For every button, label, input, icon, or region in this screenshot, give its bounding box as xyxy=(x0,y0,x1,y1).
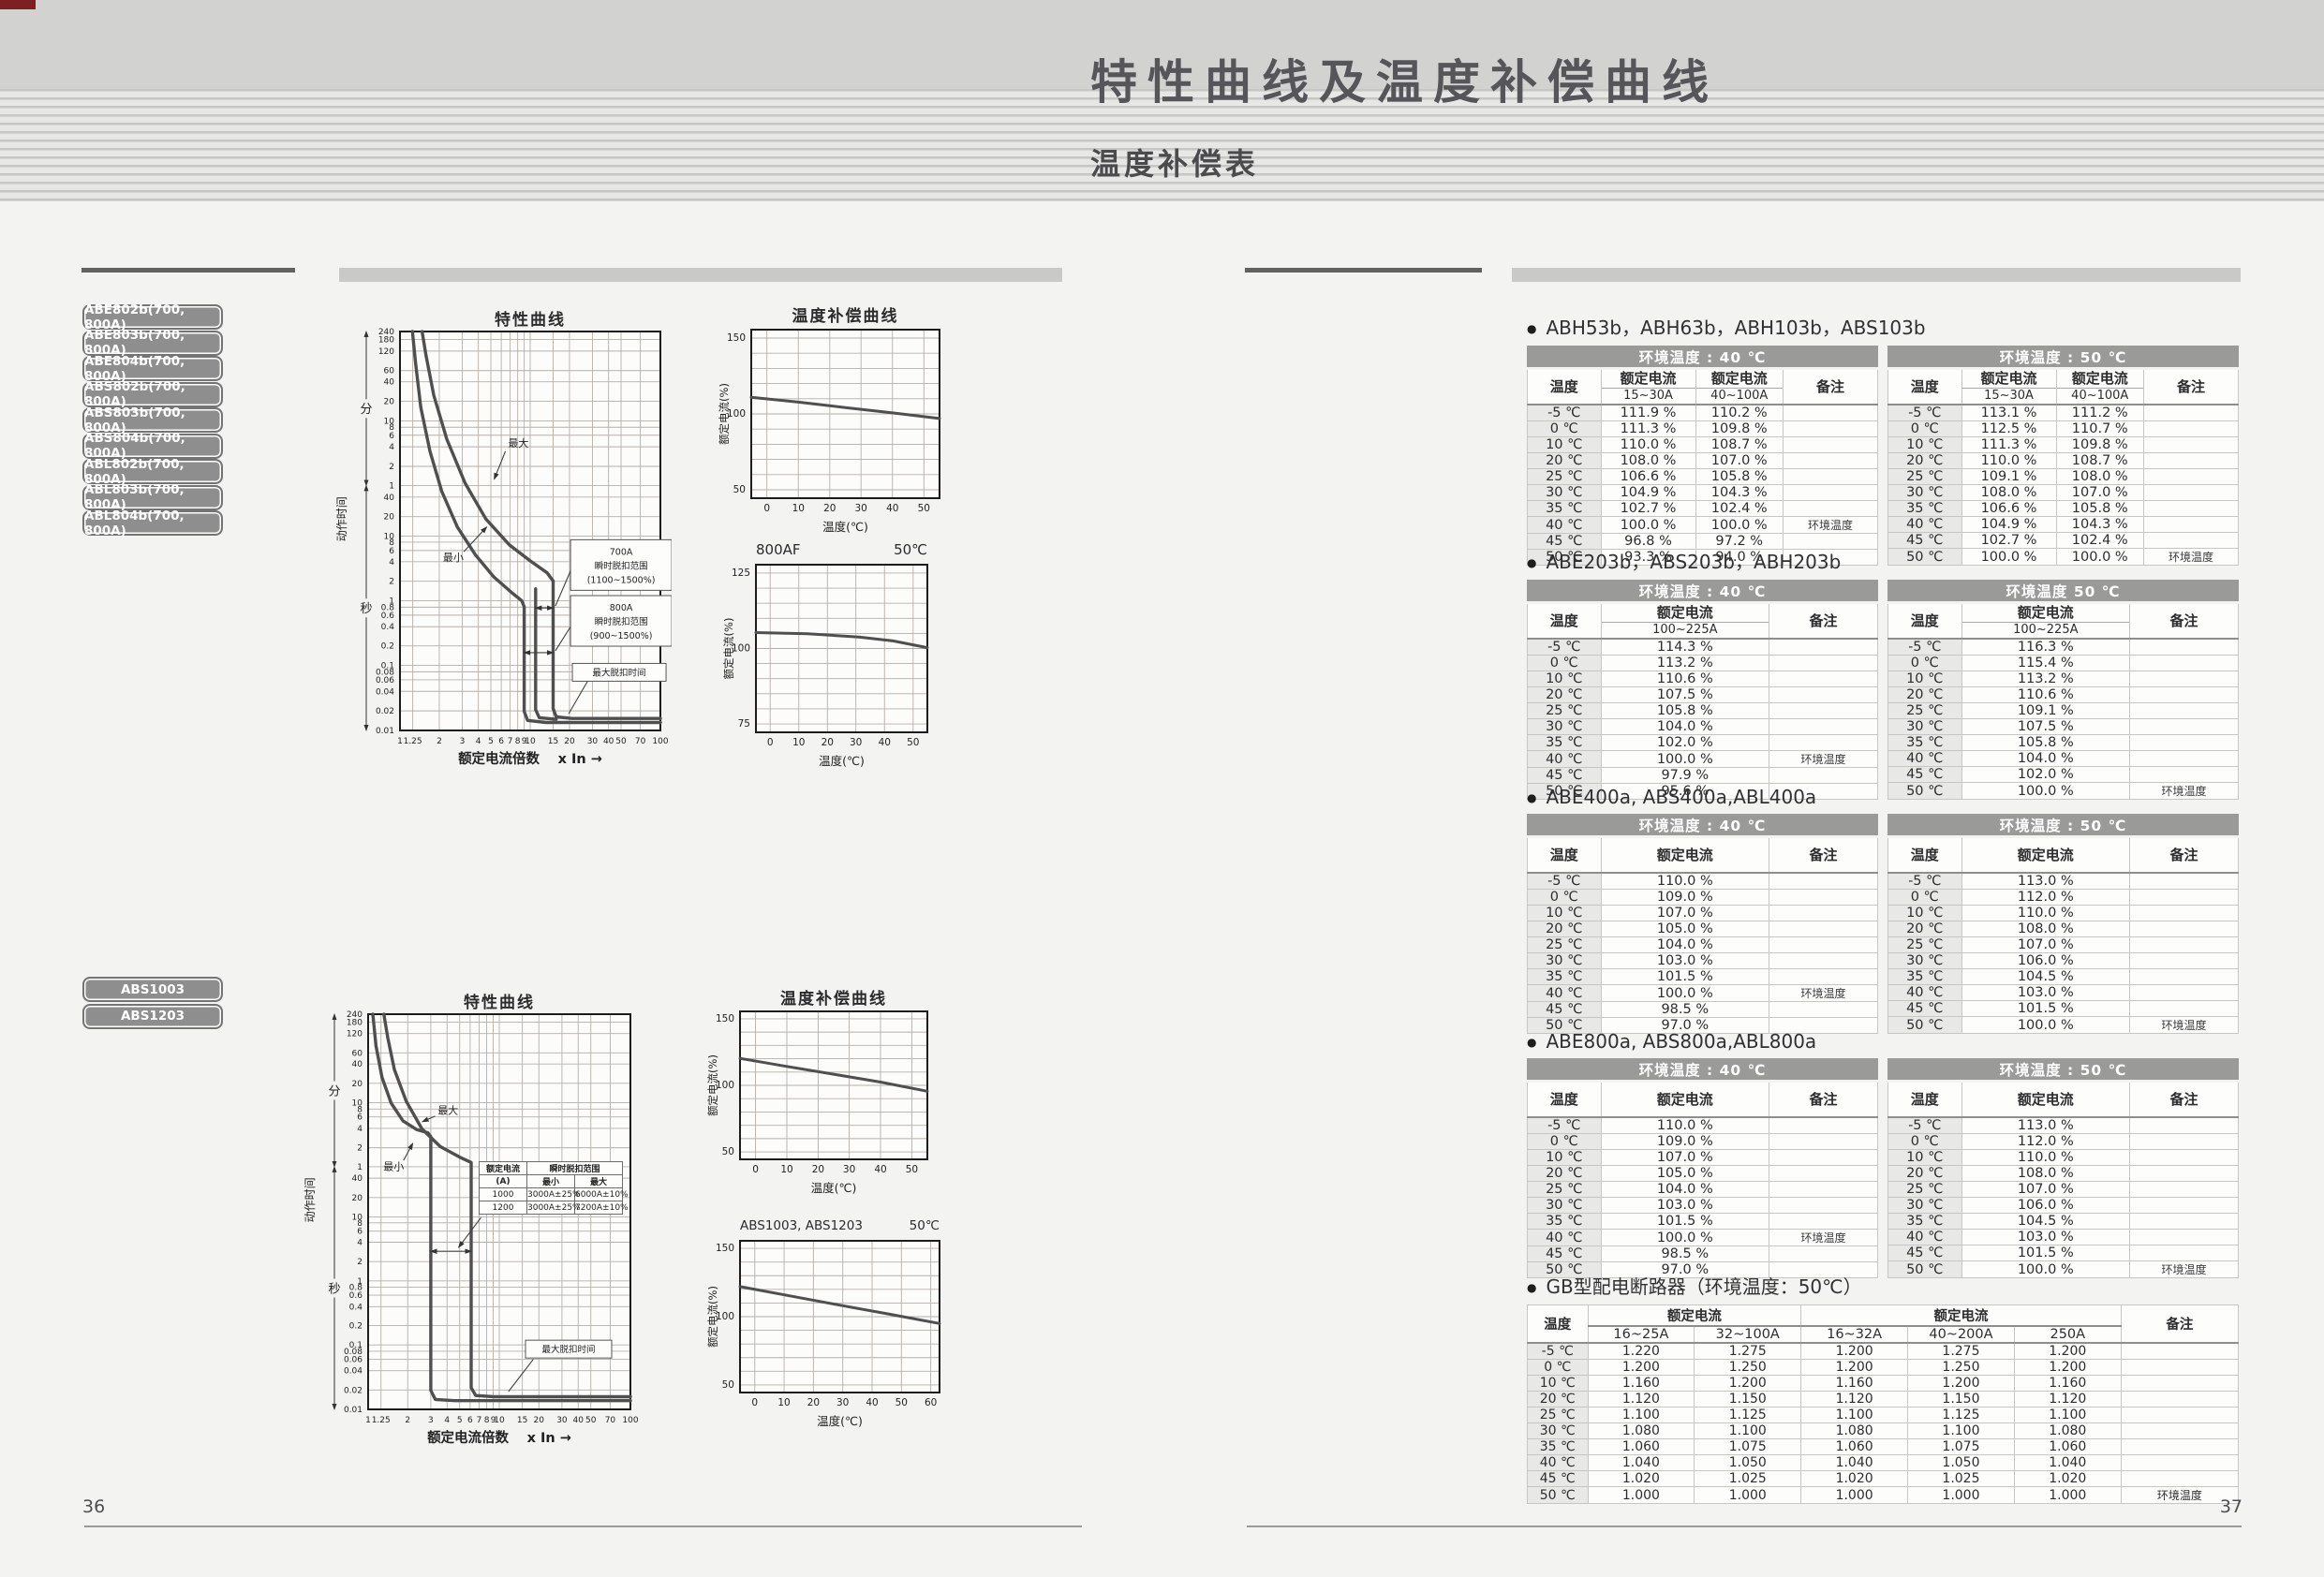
table-cell: 1.060 xyxy=(2014,1439,2121,1455)
table-row: 20 ℃108.0 % xyxy=(1888,1166,2239,1182)
svg-text:0.01: 0.01 xyxy=(376,727,394,736)
svg-text:额定电流(%): 额定电流(%) xyxy=(722,618,735,680)
table-cell: 1.020 xyxy=(2014,1471,2121,1487)
svg-text:1: 1 xyxy=(357,1163,363,1172)
table-cell xyxy=(1769,1134,1878,1150)
svg-text:20: 20 xyxy=(812,1164,824,1175)
table-row: 10 ℃110.0 %108.7 % xyxy=(1528,437,1878,453)
table-header-cell: 额定电流 xyxy=(1961,837,2130,874)
table-cell xyxy=(1769,1182,1878,1198)
table-cell: 1.060 xyxy=(1588,1439,1695,1455)
table-cell: 104.0 % xyxy=(1601,1182,1769,1198)
svg-text:6: 6 xyxy=(357,1228,363,1237)
table-cell xyxy=(1769,768,1878,784)
table-header-cell: 温度 xyxy=(1888,1082,1962,1118)
table-cell: 45 ℃ xyxy=(1528,1471,1589,1487)
table-cell: 0 ℃ xyxy=(1528,656,1602,671)
table-header-cell: 额定电流 xyxy=(1801,1305,2122,1327)
svg-text:20: 20 xyxy=(352,1194,363,1203)
table-cell xyxy=(1769,921,1878,937)
table-row: 0 ℃109.0 % xyxy=(1528,890,1878,906)
table-cell: 103.0 % xyxy=(1601,953,1769,969)
svg-text:(900~1500%): (900~1500%) xyxy=(590,631,653,641)
svg-text:7: 7 xyxy=(508,737,513,746)
chart-svg: 2401801206040201086421402010864210.80.60… xyxy=(301,1003,640,1456)
comp2-heading: 800AF 50℃ xyxy=(756,541,927,558)
svg-text:6: 6 xyxy=(389,432,394,441)
svg-text:最大脱扣时间: 最大脱扣时间 xyxy=(541,1344,595,1355)
table-cell xyxy=(2130,1214,2239,1230)
comp-table-half: 环境温度 : 40 ℃温度额定电流备注-5 ℃110.0 %0 ℃109.0 %… xyxy=(1527,814,1878,1034)
table-row: 20 ℃110.6 % xyxy=(1888,687,2239,703)
table-cell: 20 ℃ xyxy=(1888,687,1962,703)
table-cell: 113.0 % xyxy=(1961,873,2130,890)
table-cell: 45 ℃ xyxy=(1528,1246,1602,1262)
table-cell: 20 ℃ xyxy=(1888,453,1962,469)
table-row: 45 ℃98.5 % xyxy=(1528,1246,1878,1262)
svg-text:15: 15 xyxy=(517,1416,527,1425)
footer-rule-left xyxy=(84,1525,1082,1527)
table-cell: -5 ℃ xyxy=(1528,639,1602,656)
model-badge: ABL803b(700, 800A) xyxy=(82,485,223,510)
table-cell: 25 ℃ xyxy=(1528,1182,1602,1198)
svg-text:0.6: 0.6 xyxy=(381,612,395,621)
table-header-cell: 32~100A xyxy=(1695,1326,1801,1343)
table-cell xyxy=(1769,656,1878,671)
table-cell: 6000A±10% xyxy=(575,1188,623,1201)
svg-text:温度(℃): 温度(℃) xyxy=(822,520,868,534)
table-row: 30 ℃103.0 % xyxy=(1528,1198,1878,1214)
table-cell: 0 ℃ xyxy=(1888,421,1962,437)
svg-text:4: 4 xyxy=(444,1416,450,1425)
table-cell xyxy=(2121,1408,2238,1423)
table-cell: 0 ℃ xyxy=(1528,1134,1602,1150)
table-cell: 109.0 % xyxy=(1601,890,1769,906)
table-cell: 102.7 % xyxy=(1961,533,2056,549)
svg-text:0.2: 0.2 xyxy=(349,1322,363,1332)
bullet-icon: ● xyxy=(1527,556,1536,569)
table-cell: 40 ℃ xyxy=(1888,985,1962,1001)
svg-text:1.25: 1.25 xyxy=(372,1416,391,1425)
table-row: 35 ℃101.5 % xyxy=(1528,969,1878,985)
table-row: 10 ℃107.0 % xyxy=(1528,906,1878,921)
table-row: 20 ℃108.0 %107.0 % xyxy=(1528,453,1878,469)
model-badge: ABE802b(700, 800A) xyxy=(82,304,223,330)
table-cell: 1.160 xyxy=(1588,1376,1695,1392)
table-row: 20 ℃108.0 % xyxy=(1888,921,2239,937)
table-cell: 104.9 % xyxy=(1961,517,2056,533)
table-header-cell: 备注 xyxy=(1769,837,1878,874)
model-badge: ABL804b(700, 800A) xyxy=(82,510,223,536)
table-cell: 1.275 xyxy=(1908,1343,2015,1360)
table-cell: 101.5 % xyxy=(1601,1214,1769,1230)
table-cell: 108.7 % xyxy=(1695,437,1784,453)
table-cell: 100.0 % xyxy=(1601,517,1695,534)
table-cell: 97.9 % xyxy=(1601,768,1769,784)
svg-text:0.02: 0.02 xyxy=(376,707,394,716)
table-cell: 35 ℃ xyxy=(1888,501,1962,517)
table-cell xyxy=(1769,1198,1878,1214)
table-cell xyxy=(2130,1166,2239,1182)
table-cell xyxy=(2121,1423,2238,1439)
table-cell xyxy=(1769,719,1878,735)
svg-text:10: 10 xyxy=(777,1397,790,1408)
page-subtitle: 温度补偿表 xyxy=(1090,140,1259,184)
table-row: 40 ℃100.0 %环境温度 xyxy=(1528,751,1878,768)
table-header-cell: 温度 xyxy=(1888,837,1962,874)
table-cell: 40 ℃ xyxy=(1528,517,1602,534)
svg-text:0.06: 0.06 xyxy=(344,1355,363,1364)
table-cell: 35 ℃ xyxy=(1888,969,1962,985)
table-header-cell: 备注 xyxy=(2130,603,2239,640)
table-row: 25 ℃104.0 % xyxy=(1528,937,1878,953)
table-cell: 10 ℃ xyxy=(1888,437,1962,453)
svg-text:秒: 秒 xyxy=(328,1282,340,1296)
table-row: 10 ℃107.0 % xyxy=(1528,1150,1878,1166)
comp-table-abe400a: ●ABE400a, ABS400a,ABL400a 环境温度 : 40 ℃温度额… xyxy=(1527,786,2239,1034)
table-cell: 40 ℃ xyxy=(1888,1230,1962,1245)
table-row: -5 ℃113.1 %111.2 % xyxy=(1888,405,2239,421)
svg-text:20: 20 xyxy=(384,513,395,523)
table-cell: 20 ℃ xyxy=(1528,453,1602,469)
table-cell xyxy=(1784,437,1878,453)
svg-text:60: 60 xyxy=(352,1049,363,1058)
table-cell xyxy=(1769,735,1878,751)
table-row: 0 ℃111.3 %109.8 % xyxy=(1528,421,1878,437)
table-cell xyxy=(1769,1002,1878,1018)
table-header-cell: 备注 xyxy=(2130,1082,2239,1118)
table-cell: 1.120 xyxy=(1588,1392,1695,1408)
svg-text:温度(℃): 温度(℃) xyxy=(819,754,865,768)
table-cell: 1.080 xyxy=(1588,1423,1695,1439)
table-cell: 100.0 % xyxy=(1601,1230,1769,1246)
table-cell: 104.5 % xyxy=(1961,1214,2130,1230)
table-cell: 30 ℃ xyxy=(1528,485,1602,501)
table-cell: 107.0 % xyxy=(1601,1150,1769,1166)
comp-table-half: 环境温度 : 40 ℃温度额定电流备注-5 ℃110.0 %0 ℃109.0 %… xyxy=(1527,1058,1878,1278)
table-cell: -5 ℃ xyxy=(1888,873,1962,890)
table-row: 40 ℃103.0 % xyxy=(1888,1230,2239,1245)
table-header-cell: 备注 xyxy=(1784,369,1878,405)
table-cell: 1.200 xyxy=(2014,1343,2121,1360)
table-cell: 109.1 % xyxy=(1961,469,2056,485)
table-row: 25 ℃109.1 % xyxy=(1888,703,2239,719)
table-row: 35 ℃101.5 % xyxy=(1528,1214,1878,1230)
table-cell: 107.5 % xyxy=(1601,687,1769,703)
table-row: 30 ℃108.0 %107.0 % xyxy=(1888,485,2239,501)
svg-text:6: 6 xyxy=(357,1113,363,1123)
table-cell: -5 ℃ xyxy=(1528,405,1602,421)
table-cell: 103.0 % xyxy=(1961,985,2130,1001)
table-cell: 35 ℃ xyxy=(1528,969,1602,985)
table-row: 50 ℃1.0001.0001.0001.0001.000环境温度 xyxy=(1528,1487,2239,1504)
table-band: 环境温度 : 50 ℃ xyxy=(1888,346,2239,369)
table-cell xyxy=(2130,890,2239,906)
table-cell: 1.200 xyxy=(1801,1343,1908,1360)
table-header-cell: 250A xyxy=(2014,1326,2121,1343)
svg-text:0.2: 0.2 xyxy=(381,642,394,652)
table-cell xyxy=(1784,405,1878,421)
comp4-temp-label: 50℃ xyxy=(910,1218,940,1233)
table-cell: 25 ℃ xyxy=(1888,937,1962,953)
table-cell xyxy=(2130,953,2239,969)
table-cell: 113.0 % xyxy=(1961,1117,2130,1134)
svg-text:800A: 800A xyxy=(610,603,633,613)
table-cell: 1.075 xyxy=(1695,1439,1801,1455)
table-row: 10 ℃1.1601.2001.1601.2001.160 xyxy=(1528,1376,2239,1392)
chart-svg: 1251007501020304050额定电流(%)温度(℃) xyxy=(722,557,940,774)
table-cell xyxy=(2130,1245,2239,1261)
table-cell xyxy=(1769,671,1878,687)
svg-text:70: 70 xyxy=(605,1416,616,1425)
table-cell: 30 ℃ xyxy=(1888,719,1962,735)
svg-text:50: 50 xyxy=(733,484,746,495)
table-cell xyxy=(2144,501,2239,517)
comp-table-abe203b: ●ABE203b，ABS203b，ABH203b 环境温度 : 40 ℃温度额定… xyxy=(1527,547,2239,800)
svg-text:120: 120 xyxy=(378,347,394,357)
table-cell: 1.020 xyxy=(1801,1471,1908,1487)
svg-text:0.4: 0.4 xyxy=(349,1303,363,1312)
svg-text:5: 5 xyxy=(457,1416,463,1425)
svg-text:额定电流(%): 额定电流(%) xyxy=(718,383,731,445)
table-cell: 107.5 % xyxy=(1961,719,2130,735)
table-cell xyxy=(2130,703,2239,719)
table-cell: 30 ℃ xyxy=(1528,719,1602,735)
table-row: 0 ℃112.5 %110.7 % xyxy=(1888,421,2239,437)
table-band: 环境温度 : 40 ℃ xyxy=(1528,346,1878,369)
table-row: 35 ℃102.7 %102.4 % xyxy=(1528,501,1878,517)
table-cell: 1.040 xyxy=(1801,1455,1908,1471)
table-title: GB型配电断路器（环境温度：50℃） xyxy=(1546,1275,1861,1298)
table-row: 25 ℃104.0 % xyxy=(1528,1182,1878,1198)
table-cell: 1.100 xyxy=(2014,1408,2121,1423)
table-cell: 10 ℃ xyxy=(1528,906,1602,921)
table-cell: 10 ℃ xyxy=(1528,1150,1602,1166)
table-row: 20 ℃107.5 % xyxy=(1528,687,1878,703)
table-cell: 10 ℃ xyxy=(1528,437,1602,453)
svg-text:2: 2 xyxy=(437,737,442,746)
table-row: 0 ℃113.2 % xyxy=(1528,656,1878,671)
table-cell: 1.200 xyxy=(1908,1376,2015,1392)
table-cell: 30 ℃ xyxy=(1888,953,1962,969)
table-row: 45 ℃102.7 %102.4 % xyxy=(1888,533,2239,549)
table-header-cell: 备注 xyxy=(1769,1082,1878,1118)
table-row: 25 ℃1.1001.1251.1001.1251.100 xyxy=(1528,1408,2239,1423)
table-row: 40 ℃100.0 %环境温度 xyxy=(1528,1230,1878,1246)
svg-text:7: 7 xyxy=(477,1416,482,1425)
right-section-rule xyxy=(1245,268,1482,273)
svg-text:50: 50 xyxy=(585,1416,597,1425)
table-cell: 101.5 % xyxy=(1961,1001,2130,1017)
svg-text:秒: 秒 xyxy=(360,602,372,616)
table-cell xyxy=(2144,405,2239,421)
svg-text:40: 40 xyxy=(603,737,614,746)
table-row: 20 ℃110.0 %108.7 % xyxy=(1888,453,2239,469)
table-row: 25 ℃107.0 % xyxy=(1888,1182,2239,1198)
table-header-cell: 额定电流100~225A xyxy=(1961,603,2130,640)
svg-text:50: 50 xyxy=(615,737,627,746)
table-cell: 0 ℃ xyxy=(1528,421,1602,437)
table-cell xyxy=(2130,1117,2239,1134)
svg-text:180: 180 xyxy=(378,336,394,346)
svg-text:0.04: 0.04 xyxy=(344,1367,363,1377)
table-cell xyxy=(2130,1001,2239,1017)
table-cell: 30 ℃ xyxy=(1888,1198,1962,1214)
table-cell xyxy=(1769,873,1878,890)
svg-text:40: 40 xyxy=(879,737,891,748)
table-header-cell: 额定电流 xyxy=(1601,837,1769,874)
left-section-rule xyxy=(81,268,295,273)
table-cell xyxy=(2130,969,2239,985)
corner-mark xyxy=(0,0,36,9)
svg-text:最大: 最大 xyxy=(437,1103,458,1116)
table-cell: 105.8 % xyxy=(1601,703,1769,719)
table-cell xyxy=(1769,1214,1878,1230)
svg-text:4: 4 xyxy=(357,1238,363,1247)
table-row: 30 ℃106.0 % xyxy=(1888,953,2239,969)
temp-compensation-chart-2: 1501005001020304050额定电流(%)温度(℃) xyxy=(706,1004,940,1201)
table-cell: 50 ℃ xyxy=(1528,1487,1589,1504)
table-cell: 110.0 % xyxy=(1961,1150,2130,1166)
table-cell: 1.050 xyxy=(1908,1455,2015,1471)
table-row: 30 ℃1.0801.1001.0801.1001.080 xyxy=(1528,1423,2239,1439)
table-row: 45 ℃101.5 % xyxy=(1888,1001,2239,1017)
table-cell: 1.100 xyxy=(1695,1423,1801,1439)
table-row: 45 ℃102.0 % xyxy=(1888,767,2239,783)
table-header-cell: 额定电流100~225A xyxy=(1601,603,1769,640)
comp4-heading: ABS1003, ABS1203 50℃ xyxy=(740,1218,940,1233)
table-cell: 20 ℃ xyxy=(1528,687,1602,703)
table-row: 35 ℃102.0 % xyxy=(1528,735,1878,751)
table-cell: 30 ℃ xyxy=(1528,1198,1602,1214)
table-cell: 102.4 % xyxy=(1695,501,1784,517)
svg-text:0: 0 xyxy=(767,737,774,748)
table-cell xyxy=(2144,517,2239,533)
table-cell: 113.1 % xyxy=(1961,405,2056,421)
table-row: 30 ℃104.9 %104.3 % xyxy=(1528,485,1878,501)
svg-text:75: 75 xyxy=(738,718,750,730)
table-row: 45 ℃1.0201.0251.0201.0251.020 xyxy=(1528,1471,2239,1487)
table-row: 0 ℃112.0 % xyxy=(1888,890,2239,906)
comp-table-half: 环境温度 : 50 ℃温度额定电流备注-5 ℃113.0 %0 ℃112.0 %… xyxy=(1887,814,2239,1034)
table-header-cell: 额定电流 xyxy=(1961,1082,2130,1118)
model-badge: ABS803b(700, 800A) xyxy=(82,407,223,433)
table-band: 环境温度 : 50 ℃ xyxy=(1888,1059,2239,1082)
table-cell: 1.020 xyxy=(1588,1471,1695,1487)
table-row: 25 ℃107.0 % xyxy=(1888,937,2239,953)
svg-text:8: 8 xyxy=(484,1416,490,1425)
table-row: -5 ℃114.3 % xyxy=(1528,639,1878,656)
table-header-cell: 备注 xyxy=(1769,603,1878,640)
table-row: 20 ℃105.0 % xyxy=(1528,1166,1878,1182)
table-cell xyxy=(2130,873,2239,890)
svg-text:分: 分 xyxy=(328,1084,340,1098)
table-cell: -5 ℃ xyxy=(1888,639,1962,656)
table-row: -5 ℃1.2201.2751.2001.2751.200 xyxy=(1528,1343,2239,1360)
table-cell: 10 ℃ xyxy=(1888,906,1962,921)
table-row: 45 ℃97.9 % xyxy=(1528,768,1878,784)
table-row: 40 ℃1.0401.0501.0401.0501.040 xyxy=(1528,1455,2239,1471)
model-badge: ABE804b(700, 800A) xyxy=(82,356,223,381)
table-cell xyxy=(2130,1150,2239,1166)
table-cell: 1.080 xyxy=(1801,1423,1908,1439)
svg-text:4: 4 xyxy=(389,443,394,452)
model-badge: ABS1203 xyxy=(82,1004,223,1029)
svg-text:0.06: 0.06 xyxy=(376,676,394,685)
table-cell: 45 ℃ xyxy=(1888,767,1962,783)
table-header-cell: 温度 xyxy=(1528,603,1602,640)
table-cell: 106.6 % xyxy=(1601,469,1695,485)
table-cell: 40 ℃ xyxy=(1528,1455,1589,1471)
table-row: 12003000A±25%7200A±10% xyxy=(480,1201,623,1215)
table-cell: 112.0 % xyxy=(1961,1134,2130,1150)
table-cell: 1.100 xyxy=(1908,1423,2015,1439)
table-cell: 35 ℃ xyxy=(1888,1214,1962,1230)
svg-text:5: 5 xyxy=(488,737,494,746)
svg-text:0.4: 0.4 xyxy=(381,623,395,632)
svg-text:0.6: 0.6 xyxy=(349,1291,363,1301)
table-cell: 110.2 % xyxy=(1695,405,1784,421)
table-cell xyxy=(2121,1471,2238,1487)
svg-text:6: 6 xyxy=(389,547,394,556)
table-row: -5 ℃113.0 % xyxy=(1888,873,2239,890)
table-row: -5 ℃113.0 % xyxy=(1888,1117,2239,1134)
table-cell: 106.0 % xyxy=(1961,1198,2130,1214)
table-cell: 107.0 % xyxy=(1961,937,2130,953)
table-cell: 25 ℃ xyxy=(1528,937,1602,953)
page-title: 特性曲线及温度补偿曲线 xyxy=(1090,45,1719,112)
svg-text:40: 40 xyxy=(573,1416,585,1425)
table-header-cell: 温度 xyxy=(1888,369,1962,405)
svg-text:动作时间: 动作时间 xyxy=(303,1177,317,1222)
table-cell: 1200 xyxy=(480,1201,527,1215)
table-cell xyxy=(2144,533,2239,549)
table-cell: 20 ℃ xyxy=(1528,1166,1602,1182)
svg-text:0.02: 0.02 xyxy=(344,1386,363,1395)
svg-text:2: 2 xyxy=(357,1258,363,1267)
svg-text:40: 40 xyxy=(886,503,898,514)
table-cell: 45 ℃ xyxy=(1888,1001,1962,1017)
svg-text:40: 40 xyxy=(352,1174,363,1184)
table-cell xyxy=(2130,937,2239,953)
table-row: 20 ℃105.0 % xyxy=(1528,921,1878,937)
svg-text:0: 0 xyxy=(763,503,770,514)
table-row: 10 ℃113.2 % xyxy=(1888,671,2239,687)
table-cell: 环境温度 xyxy=(1769,751,1878,768)
table-header-cell: 16~32A xyxy=(1801,1326,1908,1343)
comp-table-half: 环境温度 : 50 ℃温度额定电流15~30A额定电流40~100A备注-5 ℃… xyxy=(1887,346,2239,566)
table-cell: 0 ℃ xyxy=(1888,656,1962,671)
table-cell: 108.0 % xyxy=(1601,453,1695,469)
table-cell: 1.040 xyxy=(2014,1455,2121,1471)
table-cell: 1.025 xyxy=(1695,1471,1801,1487)
table-cell: 110.0 % xyxy=(1961,453,2056,469)
table-cell: 20 ℃ xyxy=(1888,921,1962,937)
table-cell: 102.7 % xyxy=(1601,501,1695,517)
catalog-spread: 特性曲线及温度补偿曲线 温度补偿表 特性曲线 温度补偿曲线 800AF 50℃ … xyxy=(0,0,2324,1577)
svg-text:2: 2 xyxy=(389,463,394,472)
svg-text:瞬时脱扣范围: 瞬时脱扣范围 xyxy=(595,616,648,627)
table-cell xyxy=(2121,1343,2238,1360)
svg-text:10: 10 xyxy=(525,737,536,746)
table-cell: 1.125 xyxy=(1908,1408,2015,1423)
svg-text:50: 50 xyxy=(722,1379,734,1391)
table-cell xyxy=(2130,1134,2239,1150)
bullet-icon: ● xyxy=(1527,1281,1536,1294)
table-cell: 102.0 % xyxy=(1961,767,2130,783)
table-cell: 114.3 % xyxy=(1601,639,1769,656)
svg-text:温度(℃): 温度(℃) xyxy=(817,1414,863,1428)
